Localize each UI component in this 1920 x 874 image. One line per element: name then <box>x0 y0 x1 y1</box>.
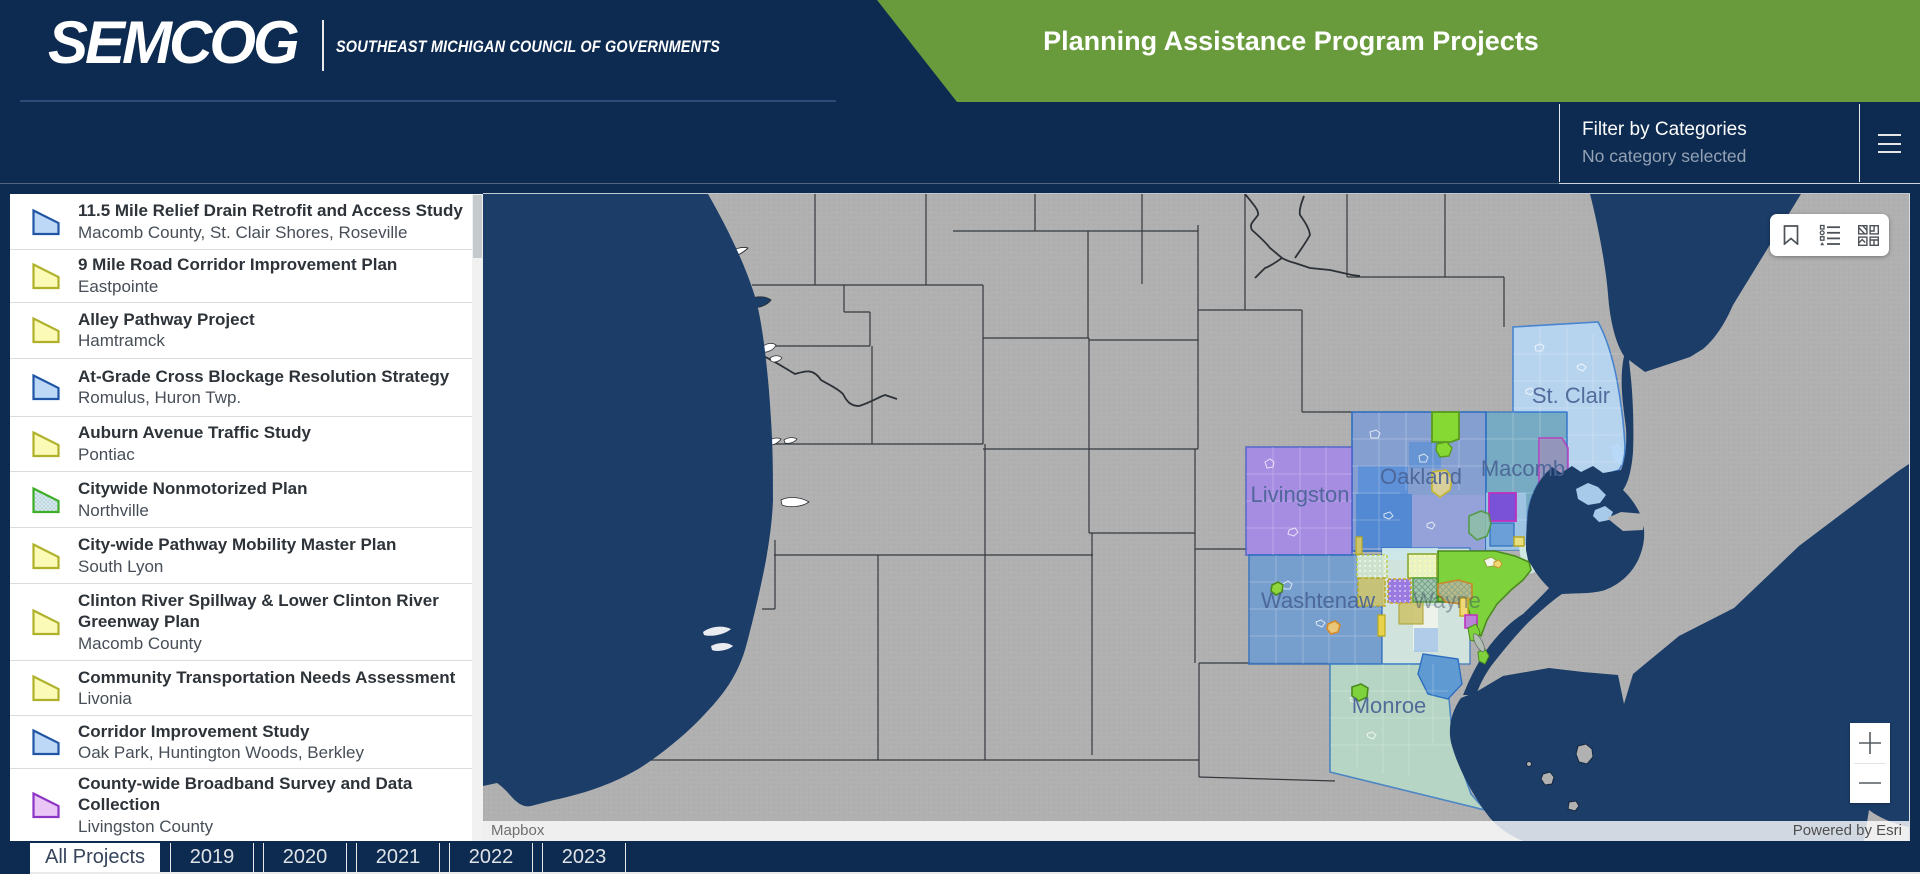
svg-text:Oakland: Oakland <box>1380 464 1462 489</box>
svg-text:Wayne: Wayne <box>1413 588 1481 613</box>
svg-text:Washtenaw: Washtenaw <box>1261 588 1375 613</box>
svg-text:Powered by Esri: Powered by Esri <box>1793 822 1902 839</box>
svg-text:St. Clair: St. Clair <box>1532 383 1610 408</box>
svg-text:Mapbox: Mapbox <box>491 822 545 839</box>
svg-text:Livingston: Livingston <box>1250 482 1349 507</box>
svg-text:Macomb: Macomb <box>1481 456 1565 481</box>
svg-text:Monroe: Monroe <box>1352 693 1427 718</box>
